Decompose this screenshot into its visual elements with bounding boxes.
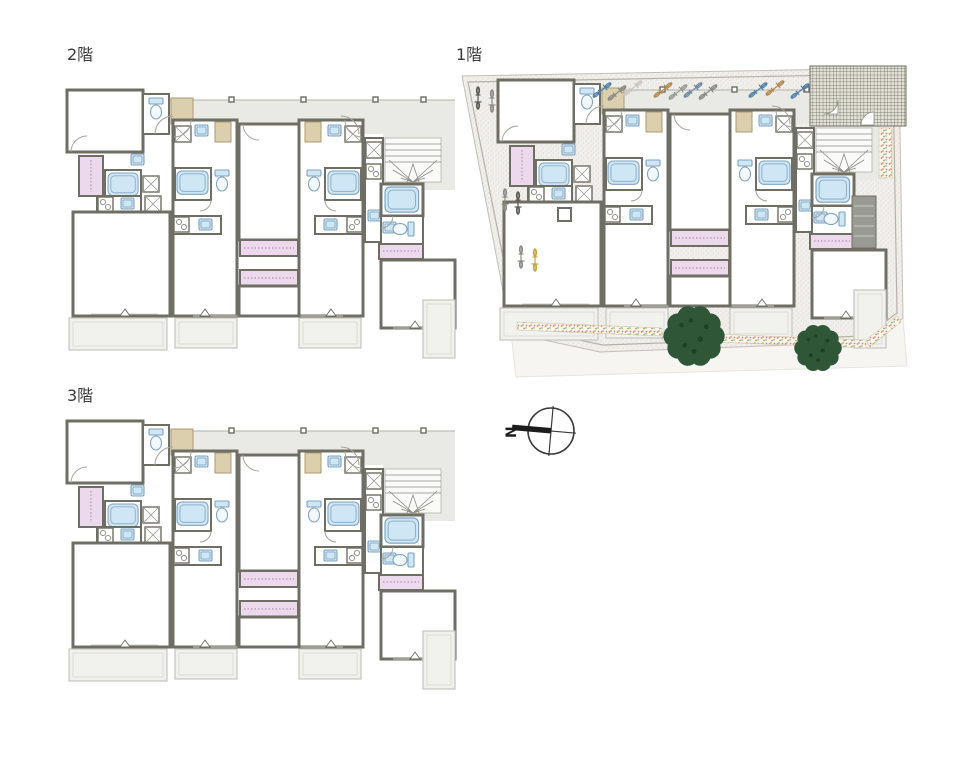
floor3-label: 3階 — [67, 386, 93, 405]
building-floor2 — [67, 90, 455, 358]
floor3-plan: 3階 — [67, 386, 455, 689]
louver-panel — [852, 196, 876, 248]
tree-icon — [663, 306, 724, 366]
floorplan-sheet: 2階 3階 1階 — [0, 0, 979, 769]
flower-bed — [879, 128, 892, 178]
north-label: N — [504, 426, 520, 438]
building-floor3 — [67, 421, 455, 689]
entrance-mesh-paving — [810, 66, 906, 126]
floor-hatch-square — [558, 208, 571, 221]
floor1-label: 1階 — [456, 45, 482, 64]
north-compass: N — [504, 404, 578, 458]
floor2-plan: 2階 — [67, 45, 455, 358]
floor2-label: 2階 — [67, 45, 93, 64]
floor1-plan: 1階 — [456, 45, 907, 377]
tree-icon — [794, 325, 842, 371]
